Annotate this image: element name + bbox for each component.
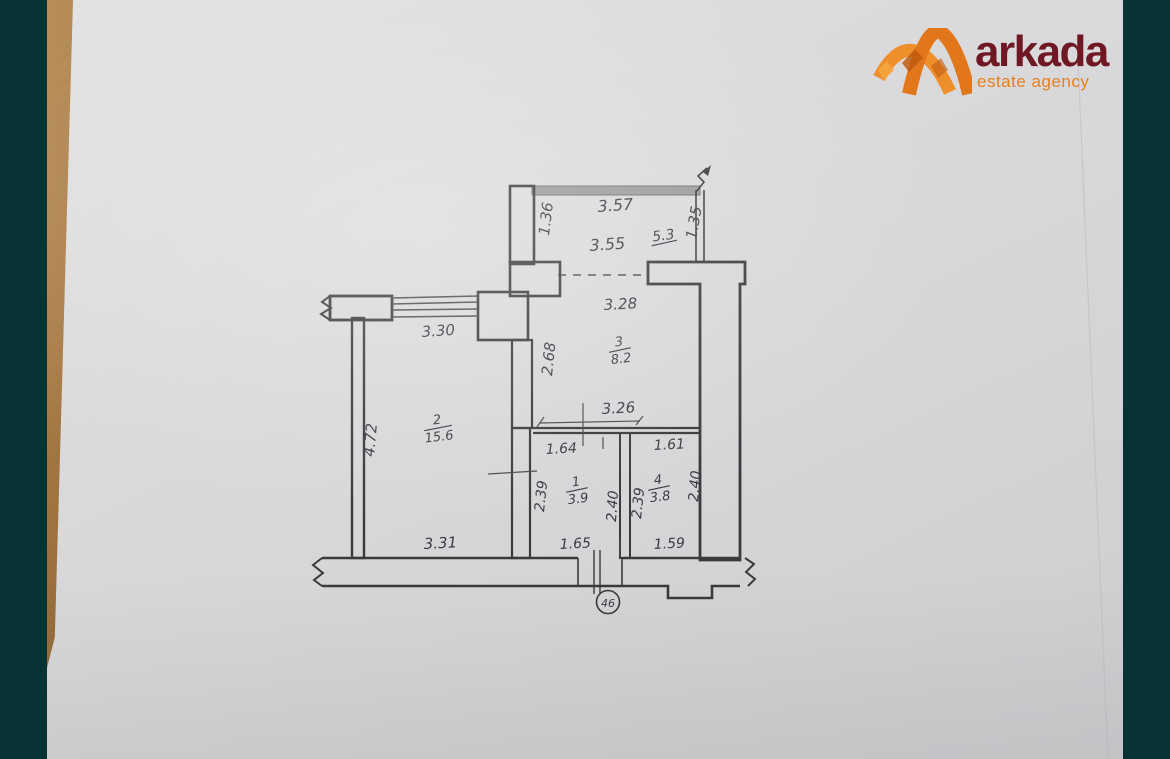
dim-living-bottom: 3.31	[423, 533, 457, 553]
svg-text:3: 3	[614, 335, 624, 351]
dim-hall-bottom: 1.65	[559, 535, 591, 553]
dim-balcony-right: 1.35	[682, 205, 706, 241]
balcony-area-label: 5.3	[649, 226, 677, 245]
floorplan-svg: 1.36 3.57 1.35 3.55 5.3 3.28 2.68 3.26 3…	[0, 0, 1170, 759]
dim-kitchen-left: 2.68	[538, 341, 559, 376]
photo-background: 1.36 3.57 1.35 3.55 5.3 3.28 2.68 3.26 3…	[0, 0, 1170, 759]
dim-living-top: 3.30	[421, 321, 456, 341]
svg-text:46: 46	[601, 597, 615, 610]
dim-bath-bottom: 1.59	[653, 535, 685, 553]
unit-number-badge: 46	[597, 591, 620, 614]
room-label-living: 2 15.6	[422, 411, 455, 446]
dim-bath-right: 2.40	[686, 470, 705, 503]
dim-living-left: 4.72	[360, 423, 381, 458]
dim-balcony-left: 1.36	[535, 201, 557, 236]
room-label-bath: 4 3.8	[646, 472, 672, 506]
break-mark-right	[745, 558, 755, 586]
paper-crease	[1078, 60, 1108, 759]
svg-text:3.9: 3.9	[567, 491, 589, 508]
svg-text:4: 4	[653, 473, 663, 489]
svg-text:1: 1	[571, 475, 581, 491]
svg-text:3.8: 3.8	[649, 489, 671, 506]
room-label-kitchen: 3 8.2	[607, 334, 633, 368]
break-mark-bottomleft	[313, 558, 323, 586]
balcony-railing	[532, 186, 700, 195]
svg-text:2: 2	[432, 413, 442, 429]
dim-balcony-top: 3.57	[597, 194, 635, 215]
arkada-arch-icon	[872, 28, 972, 98]
dim-balcony-inner: 3.55	[589, 234, 626, 255]
svg-text:15.6: 15.6	[424, 428, 455, 446]
dim-bath-left: 2.39	[629, 487, 648, 520]
logo-wordmark: arkada	[975, 30, 1108, 74]
logo-tagline: estate agency	[977, 72, 1089, 92]
room-label-hall: 1 3.9	[564, 474, 590, 508]
dim-kitchen-bottom: 3.26	[601, 398, 635, 418]
dim-bath-top: 1.61	[653, 436, 685, 454]
dim-hall-right: 2.40	[604, 490, 622, 522]
dim-kitchen-top: 3.28	[603, 294, 637, 314]
logo: arkada estate agency	[872, 28, 1122, 98]
dim-hall-top: 1.64	[545, 440, 577, 458]
svg-text:8.2: 8.2	[610, 351, 632, 368]
dim-hall-left: 2.39	[532, 480, 551, 513]
window-living	[392, 296, 478, 317]
